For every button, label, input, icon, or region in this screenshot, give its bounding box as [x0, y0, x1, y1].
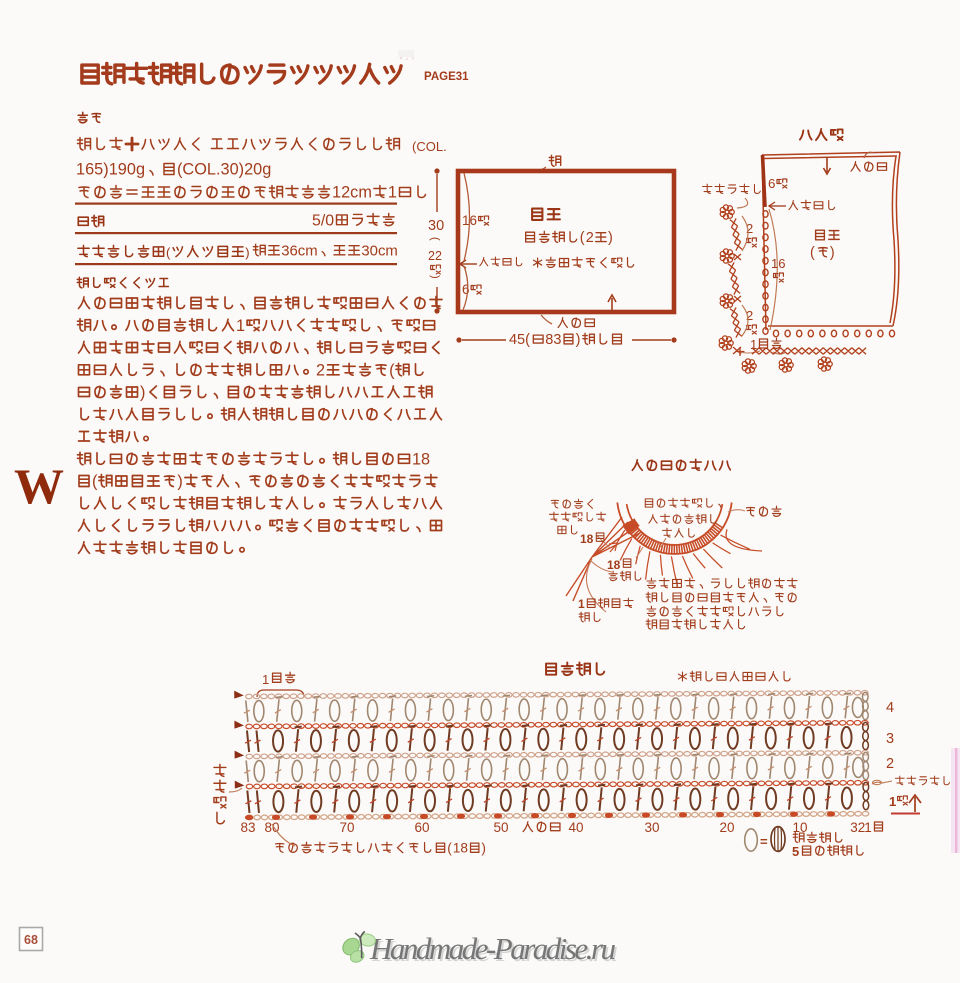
svg-text:6: 6	[462, 282, 470, 297]
svg-text:18: 18	[412, 450, 430, 468]
svg-text:83: 83	[545, 332, 561, 348]
svg-text:18: 18	[580, 532, 594, 546]
svg-text:22: 22	[428, 249, 442, 263]
svg-text:1: 1	[889, 794, 896, 809]
svg-text:5: 5	[792, 844, 799, 859]
svg-text:W: W	[14, 458, 64, 514]
svg-text:(COL.: (COL.	[412, 139, 447, 154]
svg-text:20: 20	[719, 820, 734, 835]
svg-text:1: 1	[262, 672, 269, 687]
svg-text:50: 50	[493, 820, 508, 835]
svg-text:6: 6	[768, 176, 775, 191]
svg-text:PAGE31: PAGE31	[424, 71, 469, 83]
svg-text:3: 3	[850, 820, 858, 835]
svg-text:(: (	[166, 245, 171, 260]
svg-text:): )	[481, 840, 486, 855]
svg-text:30cm: 30cm	[361, 243, 397, 259]
svg-text:30: 30	[428, 218, 444, 234]
svg-text:1: 1	[864, 820, 872, 835]
svg-text:): )	[245, 245, 249, 260]
svg-text:2: 2	[316, 361, 325, 379]
svg-text:(COL.30)20g: (COL.30)20g	[177, 161, 271, 179]
svg-text:3: 3	[886, 731, 894, 747]
svg-text:83: 83	[240, 820, 255, 835]
svg-text:): )	[177, 473, 182, 491]
svg-text:4: 4	[886, 700, 894, 716]
svg-text:70: 70	[339, 820, 354, 835]
svg-text:): )	[608, 230, 613, 246]
svg-text:1: 1	[388, 184, 397, 202]
svg-text:(: (	[525, 332, 530, 348]
svg-text:(: (	[580, 230, 585, 246]
svg-text:=: =	[760, 834, 768, 849]
svg-text:165)190g: 165)190g	[76, 161, 145, 179]
svg-text:): )	[429, 275, 441, 279]
svg-text:45: 45	[509, 332, 525, 348]
svg-text:36cm: 36cm	[281, 243, 317, 259]
svg-text:): )	[830, 245, 835, 261]
svg-text:(: (	[92, 473, 98, 491]
svg-text:40: 40	[568, 820, 583, 835]
svg-text:): )	[576, 332, 581, 348]
svg-text:68: 68	[24, 933, 38, 947]
svg-text:(: (	[429, 237, 441, 241]
svg-text:18: 18	[607, 558, 621, 572]
svg-text:(: (	[447, 840, 452, 855]
svg-text:18: 18	[453, 840, 469, 855]
svg-text:30: 30	[644, 820, 659, 835]
svg-text:1: 1	[236, 317, 245, 335]
svg-text:5/0: 5/0	[312, 212, 334, 229]
svg-text:(: (	[810, 245, 815, 261]
svg-text:Handmade-Paradise.ru: Handmade-Paradise.ru	[369, 931, 616, 966]
svg-text:1: 1	[578, 597, 585, 611]
svg-text:2: 2	[586, 230, 594, 246]
svg-text:60: 60	[414, 820, 429, 835]
svg-text:12cm: 12cm	[332, 184, 372, 202]
svg-text:16: 16	[771, 256, 785, 271]
svg-text:): )	[140, 384, 145, 402]
svg-text:2: 2	[886, 756, 894, 772]
svg-text:(: (	[389, 361, 395, 379]
